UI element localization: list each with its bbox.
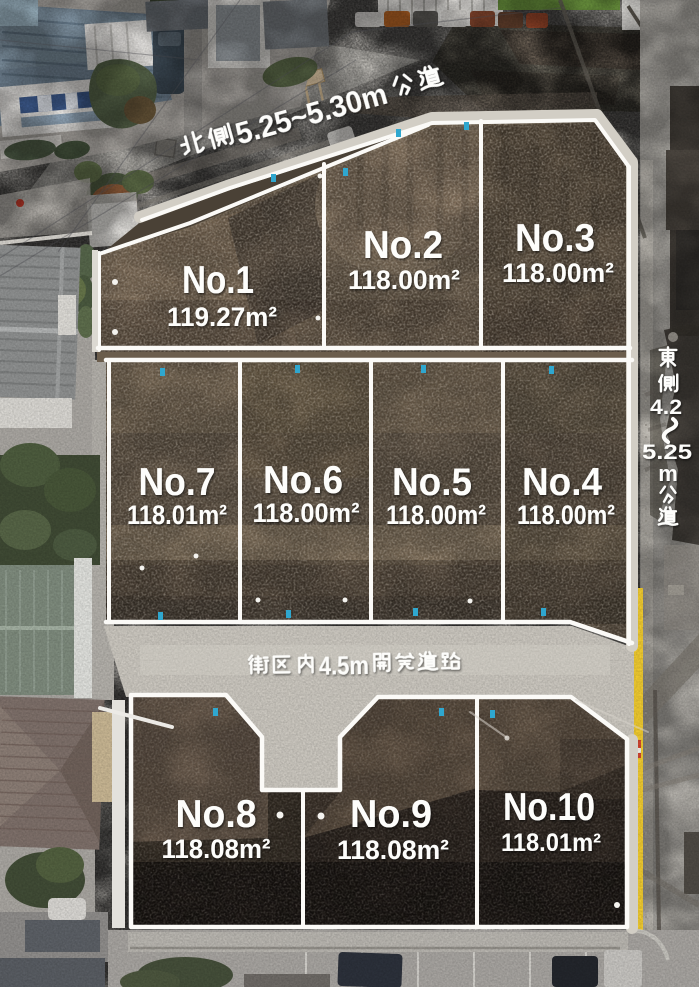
svg-text:4.2: 4.2 xyxy=(650,396,682,419)
svg-text:No.6: No.6 xyxy=(263,459,343,502)
svg-text:118.00m²: 118.00m² xyxy=(253,498,360,528)
svg-text:118.08m²: 118.08m² xyxy=(162,834,271,864)
svg-text:4.5m: 4.5m xyxy=(319,650,370,681)
svg-text:No.5: No.5 xyxy=(392,461,472,504)
svg-text:No.1: No.1 xyxy=(182,259,254,302)
svg-text:118.00m²: 118.00m² xyxy=(517,500,615,530)
svg-text:No.4: No.4 xyxy=(522,461,602,504)
svg-text:118.01m²: 118.01m² xyxy=(501,829,601,857)
svg-text:m: m xyxy=(658,461,678,486)
svg-text:119.27m²: 119.27m² xyxy=(167,302,277,332)
svg-text:No.10: No.10 xyxy=(503,786,595,829)
svg-text:No.7: No.7 xyxy=(139,461,216,504)
svg-text:No.3: No.3 xyxy=(515,217,595,260)
svg-text:No.9: No.9 xyxy=(350,793,432,836)
svg-text:118.08m²: 118.08m² xyxy=(337,835,449,865)
svg-text:118.01m²: 118.01m² xyxy=(127,500,227,530)
svg-text:118.00m²: 118.00m² xyxy=(386,500,486,530)
svg-text:No.2: No.2 xyxy=(363,224,443,267)
svg-text:118.00m²: 118.00m² xyxy=(348,265,460,295)
svg-text:118.00m²: 118.00m² xyxy=(502,258,614,288)
svg-text:No.8: No.8 xyxy=(176,793,257,836)
